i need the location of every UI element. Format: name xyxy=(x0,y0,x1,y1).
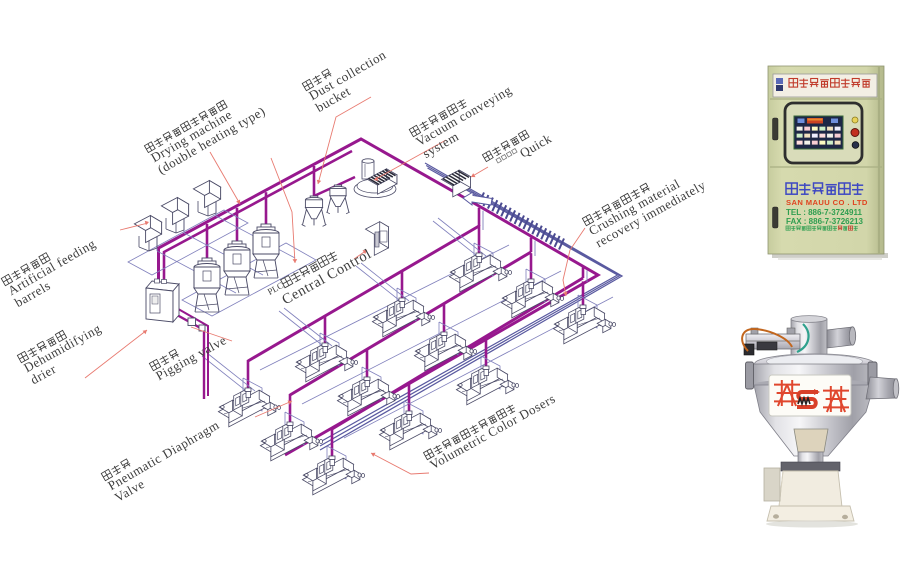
svg-text:FAX : 886-7-3726213: FAX : 886-7-3726213 xyxy=(786,217,863,226)
svg-text:TEL : 886-7-3724911: TEL : 886-7-3724911 xyxy=(786,208,862,217)
svg-text:SAN MAUU CO . LTD: SAN MAUU CO . LTD xyxy=(786,198,868,207)
